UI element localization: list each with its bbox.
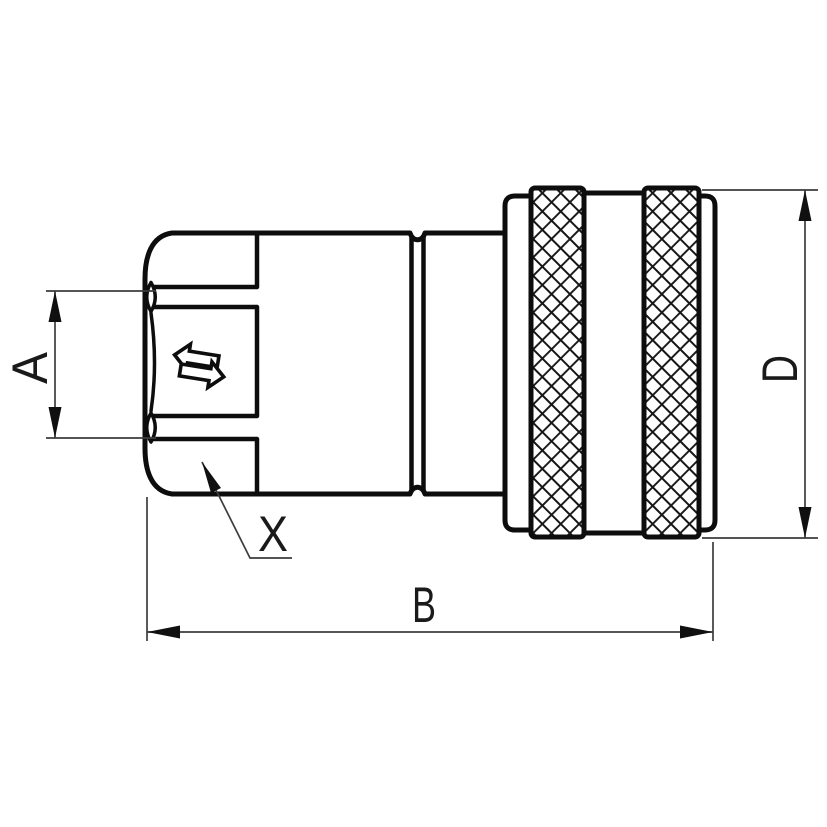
knurl-band-left — [531, 188, 584, 537]
detail-x-label: X — [258, 506, 288, 562]
dim-b-label: B — [412, 577, 436, 633]
dim-a-extension-lines — [46, 291, 156, 438]
coupling-body — [145, 188, 715, 537]
dim-d-label: D — [752, 355, 808, 383]
dimension-a: A — [2, 291, 156, 438]
coupling-drawing-canvas: A B D X — [0, 0, 827, 827]
hex-chamfer-lens-top — [147, 283, 156, 312]
dim-d-arrow-up — [799, 190, 812, 221]
technical-drawing-page: A B D X — [0, 0, 827, 827]
knurl-band-right — [644, 188, 699, 537]
knurled-sleeve — [505, 188, 715, 537]
dim-a-arrow-down — [49, 407, 62, 438]
dim-b-arrow-left — [147, 626, 180, 639]
dim-a-label: A — [2, 351, 58, 384]
dim-a-arrow-up — [49, 291, 62, 322]
dim-d-arrow-down — [799, 507, 812, 538]
sleeve-middle-band — [584, 193, 645, 533]
dim-b-arrow-right — [680, 626, 713, 639]
dimension-d: D — [702, 190, 818, 538]
